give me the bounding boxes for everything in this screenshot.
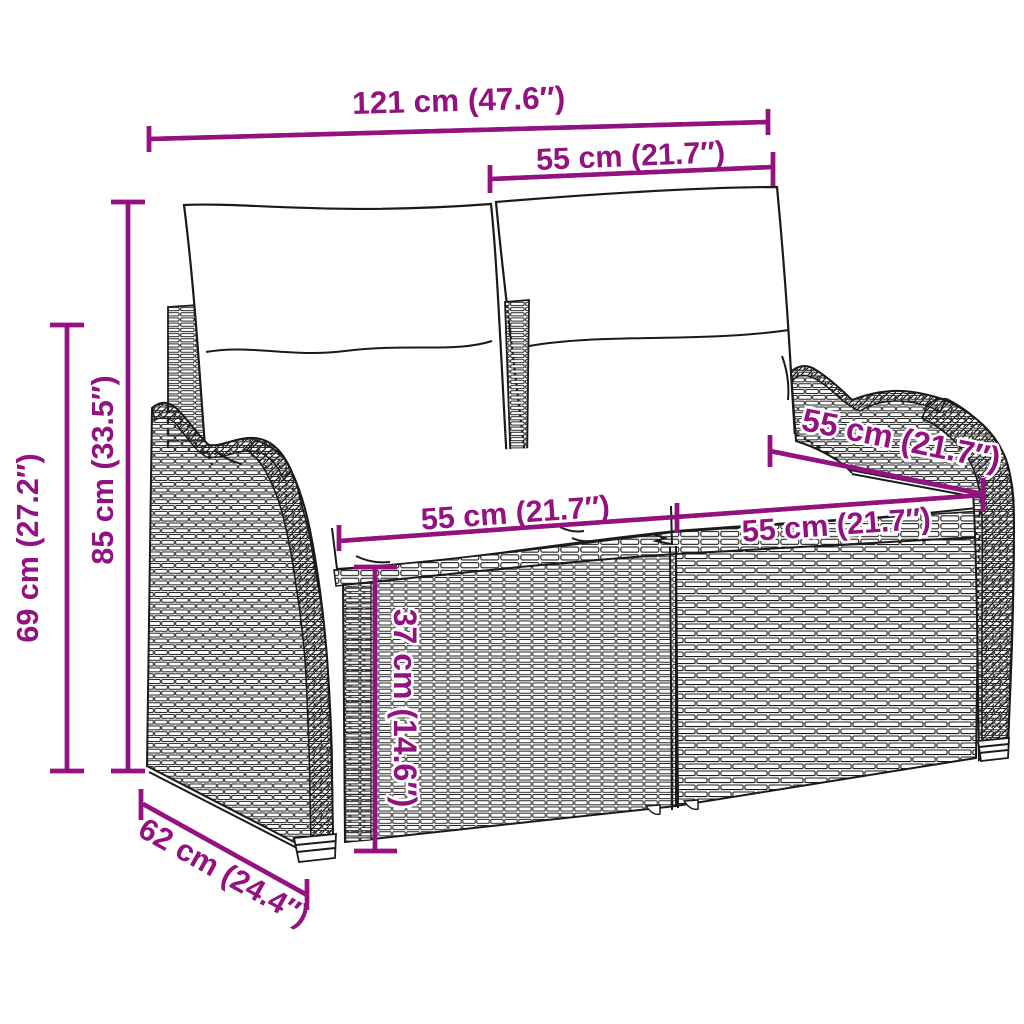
svg-text:37 cm (14.6″): 37 cm (14.6″) (387, 609, 423, 808)
svg-text:69 cm (27.2″): 69 cm (27.2″) (11, 453, 45, 642)
svg-text:85 cm (33.5″): 85 cm (33.5″) (86, 375, 120, 564)
svg-text:121 cm (47.6″): 121 cm (47.6″) (352, 79, 566, 121)
